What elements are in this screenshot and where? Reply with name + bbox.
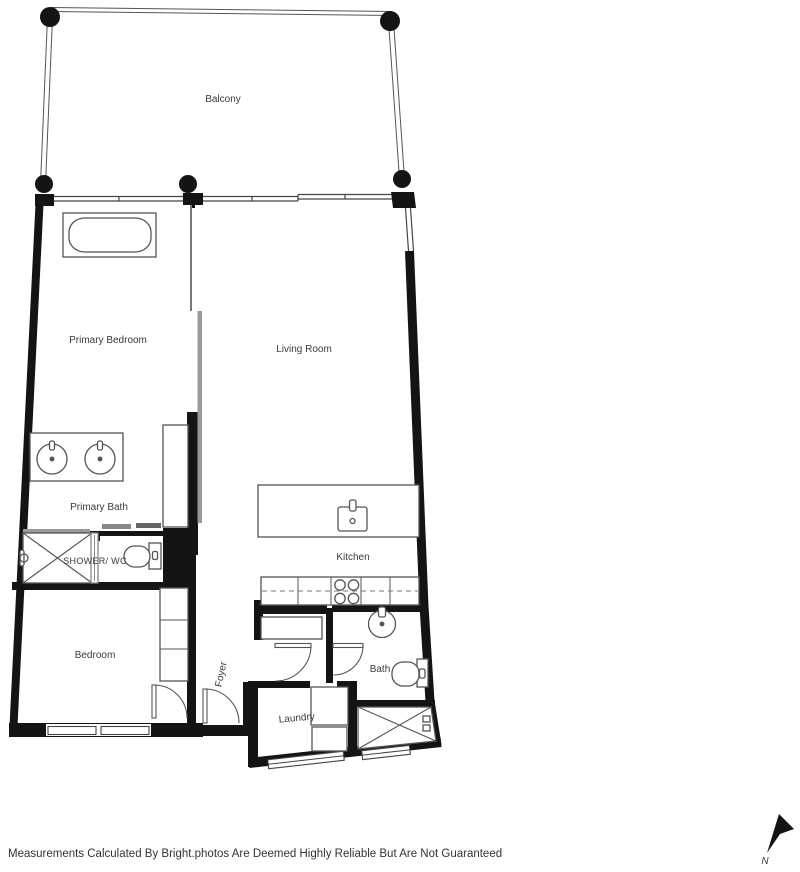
pocket-door-primary-suite (198, 311, 203, 523)
balcony-post (35, 175, 53, 193)
wall-plumbing-chase (163, 528, 196, 585)
stove-burner (335, 593, 345, 603)
door-swing-arc (276, 646, 312, 682)
window-top-right (298, 195, 392, 202)
shower-control (423, 716, 430, 722)
stove-burner (335, 580, 345, 590)
toilet-button (420, 669, 426, 678)
wall-hall-bath (326, 608, 333, 683)
balcony-post (179, 175, 197, 193)
floor-plan-page: Balcony Primary Bedroom Living Room Prim… (0, 0, 800, 872)
bedroom-window-pane (48, 727, 96, 735)
toilet-bowl (124, 546, 150, 567)
balcony-rail-right-outer (389, 21, 400, 179)
wall-foyer-bottom (203, 725, 251, 736)
faucet (50, 441, 55, 450)
disclaimer-text: Measurements Calculated By Bright.photos… (8, 848, 502, 860)
wall-top-center-post (183, 193, 203, 208)
window-living-room-right (406, 208, 414, 251)
wall-hall-top (255, 605, 327, 614)
door-leaf (275, 644, 311, 648)
compass: N (761, 814, 794, 867)
wc-toilet (124, 543, 161, 569)
bedroom-closet (160, 588, 188, 681)
bath-faucet (379, 607, 386, 617)
bathtub-basin (69, 218, 151, 252)
bedroom-door (152, 685, 187, 718)
north-label: N (761, 856, 769, 867)
bath-toilet (392, 659, 428, 687)
wall-laundry-right (348, 684, 357, 752)
bath-shower (358, 707, 436, 749)
wall-shower2-top (357, 700, 435, 707)
dryer (312, 727, 347, 751)
island-sink-drain (350, 519, 355, 524)
wc-sliding-door (102, 524, 131, 529)
laundry-machines (311, 687, 348, 751)
balcony-post (40, 7, 60, 27)
wall-laundry-left (248, 683, 258, 767)
vanity-double (30, 433, 123, 481)
bath-sink-drain (380, 622, 384, 626)
balcony-rail-top-outer (50, 8, 392, 12)
shower-glass-panel (23, 529, 90, 533)
door-swing-arc (205, 689, 239, 723)
room-label-shower-wc: SHOWER/ WC (63, 556, 127, 566)
faucet (98, 441, 103, 450)
kitchen-island (258, 485, 419, 537)
wall-wc-top (100, 531, 163, 536)
bath-door (333, 644, 363, 676)
laundry-door (275, 644, 311, 682)
room-label-primary-bath: Primary Bath (70, 502, 128, 513)
sink-drain (98, 457, 102, 461)
hall-closet (261, 617, 322, 639)
window-top-left (54, 197, 183, 202)
bedroom-window (46, 724, 151, 736)
linen-cabinet (163, 425, 188, 527)
stove-burner (348, 593, 358, 603)
bathtub (63, 213, 156, 257)
shower-control (423, 725, 430, 731)
door-leaf (152, 685, 156, 718)
balcony-post (380, 11, 400, 31)
balcony-rail-right-inner (394, 21, 405, 179)
room-label-primary-bedroom: Primary Bedroom (69, 335, 147, 346)
closet-box (160, 588, 188, 681)
room-label-laundry: Laundry (278, 711, 315, 725)
balcony-post (393, 170, 411, 188)
room-label-living-room: Living Room (276, 344, 332, 355)
room-labels: Balcony Primary Bedroom Living Room Prim… (63, 94, 390, 726)
door-swing-arc (154, 685, 187, 718)
door-leaf (203, 689, 207, 723)
north-arrow-icon (767, 814, 794, 853)
window-top-middle (203, 197, 298, 202)
kitchen-counter (261, 577, 419, 605)
floor-plan-drawing: Balcony Primary Bedroom Living Room Prim… (0, 0, 800, 872)
stove-burner (348, 580, 358, 590)
bedroom-window-pane (101, 727, 149, 735)
room-label-bedroom: Bedroom (75, 650, 116, 661)
toilet-button (153, 552, 158, 560)
wall-top-right-corner (391, 192, 416, 208)
wc-sliding-door-track (136, 523, 161, 528)
door-leaf (333, 644, 363, 648)
room-label-kitchen: Kitchen (336, 552, 369, 563)
toilet-bowl (392, 662, 419, 686)
room-label-balcony: Balcony (205, 94, 241, 105)
room-label-foyer: Foyer (214, 660, 230, 688)
door-swing-arc (334, 646, 364, 676)
island-faucet (350, 500, 357, 511)
foyer-door (203, 689, 239, 723)
sink-drain (50, 457, 54, 461)
balcony-rail-top-inner (50, 12, 392, 16)
washer (311, 687, 348, 725)
room-label-bath: Bath (370, 664, 391, 675)
